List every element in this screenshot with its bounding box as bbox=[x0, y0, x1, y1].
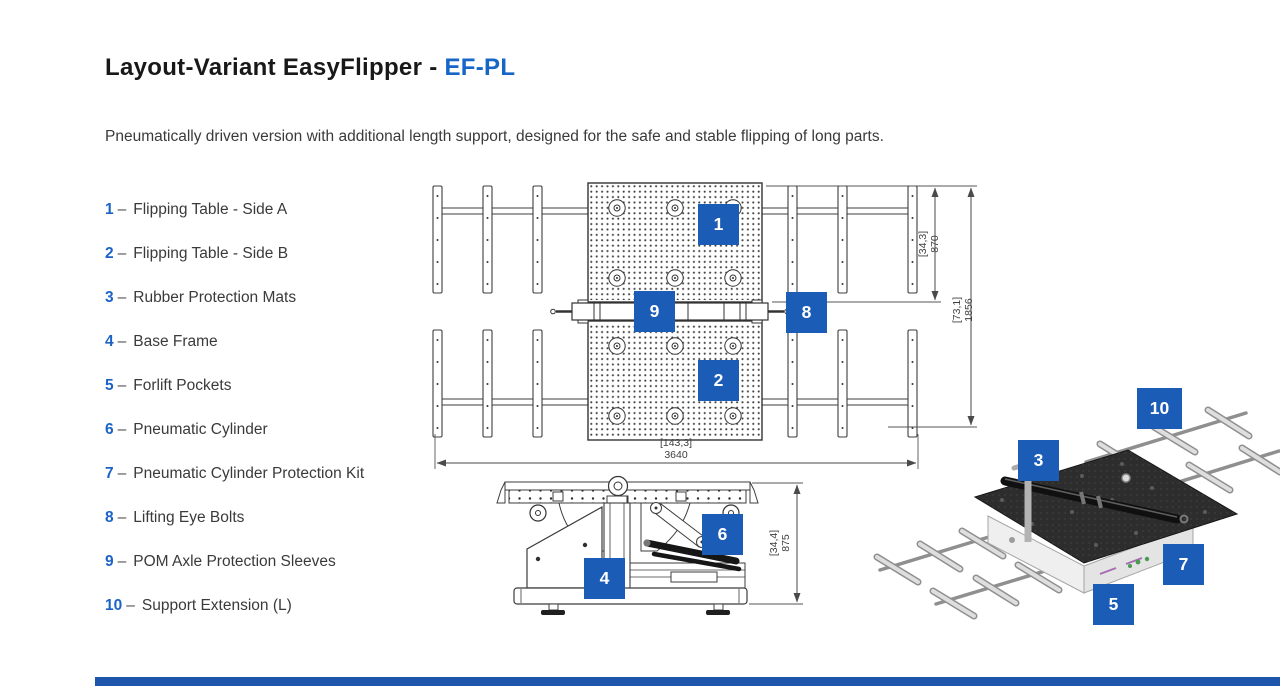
legend-label: Rubber Protection Mats bbox=[133, 289, 296, 307]
legend-label: Base Frame bbox=[133, 333, 217, 351]
legend-item-9: 9–POM Axle Protection Sleeves bbox=[105, 540, 364, 584]
legend-item-1: 1–Flipping Table - Side A bbox=[105, 188, 364, 232]
legend-item-8: 8–Lifting Eye Bolts bbox=[105, 496, 364, 540]
isometric-view-drawing bbox=[870, 400, 1280, 635]
dimension-plan-half-depth: [34,3] 870 bbox=[917, 231, 941, 257]
page-title-model: EF-PL bbox=[444, 54, 515, 81]
callout-8: 8 bbox=[786, 292, 827, 333]
legend-item-5: 5–Forlift Pockets bbox=[105, 364, 364, 408]
callout-4: 4 bbox=[584, 558, 625, 599]
legend-item-7: 7–Pneumatic Cylinder Protection Kit bbox=[105, 452, 364, 496]
legend-item-3: 3–Rubber Protection Mats bbox=[105, 276, 364, 320]
legend-label: Lifting Eye Bolts bbox=[133, 509, 244, 527]
callout-3: 3 bbox=[1018, 440, 1059, 481]
legend-label: Pneumatic Cylinder bbox=[133, 421, 267, 439]
page-title: Layout-Variant EasyFlipper - EF-PL bbox=[105, 54, 515, 82]
page-subtitle: Pneumatically driven version with additi… bbox=[105, 128, 884, 146]
callout-9: 9 bbox=[634, 291, 675, 332]
dimension-side-height: [34,4] 875 bbox=[768, 530, 792, 556]
callout-2: 2 bbox=[698, 360, 739, 401]
callout-10: 10 bbox=[1137, 388, 1182, 429]
page-title-main: Layout-Variant EasyFlipper - bbox=[105, 54, 444, 81]
callout-5: 5 bbox=[1093, 584, 1134, 625]
legend-item-4: 4–Base Frame bbox=[105, 320, 364, 364]
legend-label: POM Axle Protection Sleeves bbox=[133, 553, 335, 571]
legend-label: Pneumatic Cylinder Protection Kit bbox=[133, 465, 364, 483]
dimension-plan-width: [143,3] 3640 bbox=[660, 437, 692, 461]
legend-label: Support Extension (L) bbox=[142, 597, 292, 615]
footer-accent-bar bbox=[95, 677, 1280, 686]
legend-label: Forlift Pockets bbox=[133, 377, 231, 395]
callout-7: 7 bbox=[1163, 544, 1204, 585]
legend-item-10: 10–Support Extension (L) bbox=[105, 584, 364, 628]
legend-item-6: 6–Pneumatic Cylinder bbox=[105, 408, 364, 452]
legend-label: Flipping Table - Side A bbox=[133, 201, 287, 219]
parts-legend: 1–Flipping Table - Side A 2–Flipping Tab… bbox=[105, 188, 364, 628]
callout-1: 1 bbox=[698, 204, 739, 245]
legend-item-2: 2–Flipping Table - Side B bbox=[105, 232, 364, 276]
callout-6: 6 bbox=[702, 514, 743, 555]
dimension-plan-full-depth: [73,1] 1856 bbox=[951, 297, 975, 323]
legend-label: Flipping Table - Side B bbox=[133, 245, 288, 263]
